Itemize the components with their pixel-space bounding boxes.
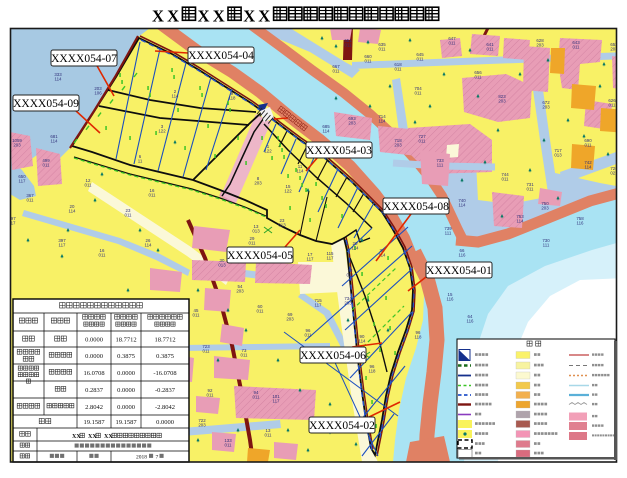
svg-text:011: 011: [527, 186, 535, 191]
svg-text:013: 013: [218, 262, 226, 267]
svg-text:011: 011: [502, 176, 510, 181]
svg-text:117: 117: [59, 242, 67, 247]
svg-text:-16.0708: -16.0708: [153, 370, 176, 377]
svg-text:203: 203: [236, 288, 244, 293]
svg-text:011: 011: [85, 182, 93, 187]
svg-text:114: 114: [517, 218, 525, 223]
svg-text:203: 203: [13, 142, 21, 147]
svg-text:0.0000: 0.0000: [85, 336, 103, 343]
svg-text:011: 011: [333, 68, 341, 73]
svg-text:116: 116: [447, 296, 455, 301]
svg-text:XXXX054-01: XXXX054-01: [426, 265, 492, 277]
svg-text:203: 203: [344, 300, 352, 305]
svg-text:XXXX054-08: XXXX054-08: [383, 201, 449, 213]
svg-text:203: 203: [348, 120, 356, 125]
svg-text:013: 013: [278, 222, 286, 227]
svg-text:114: 114: [145, 242, 153, 247]
svg-text:XXXX054-07: XXXX054-07: [51, 53, 117, 65]
svg-text:116: 116: [467, 318, 475, 323]
svg-text:0.3875: 0.3875: [156, 353, 174, 360]
svg-text:011: 011: [225, 442, 233, 447]
svg-text:011: 011: [257, 308, 265, 313]
svg-text:0.0000: 0.0000: [156, 419, 174, 426]
svg-text:0.0000: 0.0000: [117, 370, 135, 377]
svg-text:114: 114: [585, 164, 593, 169]
svg-text:117: 117: [19, 178, 27, 183]
svg-text:118: 118: [369, 368, 377, 373]
svg-text:114: 114: [51, 138, 59, 143]
svg-text:011: 011: [253, 394, 261, 399]
svg-text:013: 013: [252, 228, 260, 233]
svg-text:0.3875: 0.3875: [117, 353, 135, 360]
svg-text:011: 011: [417, 56, 425, 61]
svg-text:114: 114: [459, 202, 467, 207]
svg-text:-2.8042: -2.8042: [155, 404, 175, 411]
svg-text:111: 111: [437, 162, 444, 167]
svg-text:117: 117: [307, 256, 315, 261]
svg-text:013: 013: [554, 152, 562, 157]
svg-text:114: 114: [379, 118, 387, 123]
svg-text:114: 114: [69, 208, 77, 213]
svg-text:011: 011: [27, 197, 35, 202]
svg-text:18.7712: 18.7712: [154, 336, 175, 343]
svg-text:XX: XX: [198, 7, 228, 26]
svg-text:011: 011: [249, 240, 257, 245]
svg-text:011: 011: [415, 90, 423, 95]
svg-text:19.1587: 19.1587: [115, 419, 137, 426]
svg-text:011: 011: [379, 46, 387, 51]
svg-text:011: 011: [609, 102, 617, 107]
svg-text:011: 011: [203, 348, 211, 353]
svg-text:XXXX054-04: XXXX054-04: [188, 50, 254, 62]
svg-text:011: 011: [419, 138, 427, 143]
svg-text:203: 203: [536, 42, 544, 47]
svg-text:011: 011: [265, 432, 273, 437]
svg-text:122: 122: [264, 148, 272, 153]
svg-text:XXXX054-02: XXXX054-02: [309, 420, 375, 432]
svg-text:2.8042: 2.8042: [85, 404, 103, 411]
svg-text:11: 11: [138, 158, 143, 163]
svg-text:18.7712: 18.7712: [115, 336, 136, 343]
svg-text:-0.2837: -0.2837: [155, 387, 176, 394]
svg-text:XX: XX: [243, 7, 273, 26]
svg-text:203: 203: [542, 104, 550, 109]
svg-text:118: 118: [229, 95, 237, 100]
svg-text:011: 011: [475, 74, 483, 79]
svg-text:011: 011: [43, 162, 51, 167]
svg-text:114: 114: [172, 93, 180, 98]
svg-text:011: 011: [395, 66, 403, 71]
svg-text:114: 114: [55, 76, 63, 81]
svg-text:122: 122: [284, 188, 292, 193]
svg-text:XXXX054-03: XXXX054-03: [306, 145, 372, 157]
svg-text:203: 203: [394, 142, 402, 147]
svg-text:118: 118: [415, 334, 423, 339]
svg-text:203: 203: [498, 98, 506, 103]
svg-text:0.0000: 0.0000: [117, 387, 135, 394]
svg-text:16.0708: 16.0708: [83, 370, 104, 377]
svg-text:122: 122: [158, 128, 166, 133]
svg-text:19.1587: 19.1587: [83, 419, 105, 426]
svg-text:XXXX054-05: XXXX054-05: [227, 250, 293, 262]
svg-text:011: 011: [125, 212, 133, 217]
svg-text:XX: XX: [152, 7, 182, 26]
svg-text:203: 203: [198, 422, 206, 427]
svg-text:011: 011: [241, 352, 249, 357]
svg-text:0.2837: 0.2837: [85, 387, 104, 394]
svg-text:011: 011: [487, 46, 495, 51]
svg-text:011: 011: [149, 192, 157, 197]
svg-text:117: 117: [327, 255, 335, 260]
svg-text:7: 7: [156, 455, 159, 461]
svg-text:0.0000: 0.0000: [85, 353, 103, 360]
svg-text:011: 011: [585, 142, 593, 147]
svg-text:011: 011: [207, 392, 215, 397]
svg-text:203: 203: [286, 316, 294, 321]
svg-text:116: 116: [577, 220, 585, 225]
svg-text:203: 203: [541, 205, 549, 210]
svg-text:114: 114: [359, 338, 367, 343]
svg-text:203: 203: [254, 180, 262, 185]
svg-text:0.0000: 0.0000: [117, 404, 135, 411]
svg-text:117: 117: [315, 302, 323, 307]
svg-text:011: 011: [573, 44, 581, 49]
svg-text:011: 011: [345, 42, 353, 47]
svg-text:011: 011: [347, 272, 355, 277]
svg-text:XXXX054-06: XXXX054-06: [300, 350, 366, 362]
svg-text:114: 114: [323, 128, 331, 133]
svg-text:116: 116: [459, 252, 467, 257]
svg-text:XXXX054-09: XXXX054-09: [13, 98, 79, 110]
svg-text:111: 111: [445, 230, 452, 235]
svg-text:011: 011: [365, 58, 373, 63]
svg-text:114: 114: [352, 245, 360, 250]
svg-text:011: 011: [449, 40, 457, 45]
svg-text:011: 011: [305, 332, 313, 337]
svg-text:2018: 2018: [136, 455, 147, 461]
svg-text:111: 111: [543, 242, 550, 247]
svg-text:114: 114: [297, 168, 305, 173]
svg-text:117: 117: [273, 398, 281, 403]
svg-text:011: 011: [193, 312, 201, 317]
svg-text:011: 011: [99, 252, 107, 257]
svg-text:106: 106: [94, 90, 102, 95]
